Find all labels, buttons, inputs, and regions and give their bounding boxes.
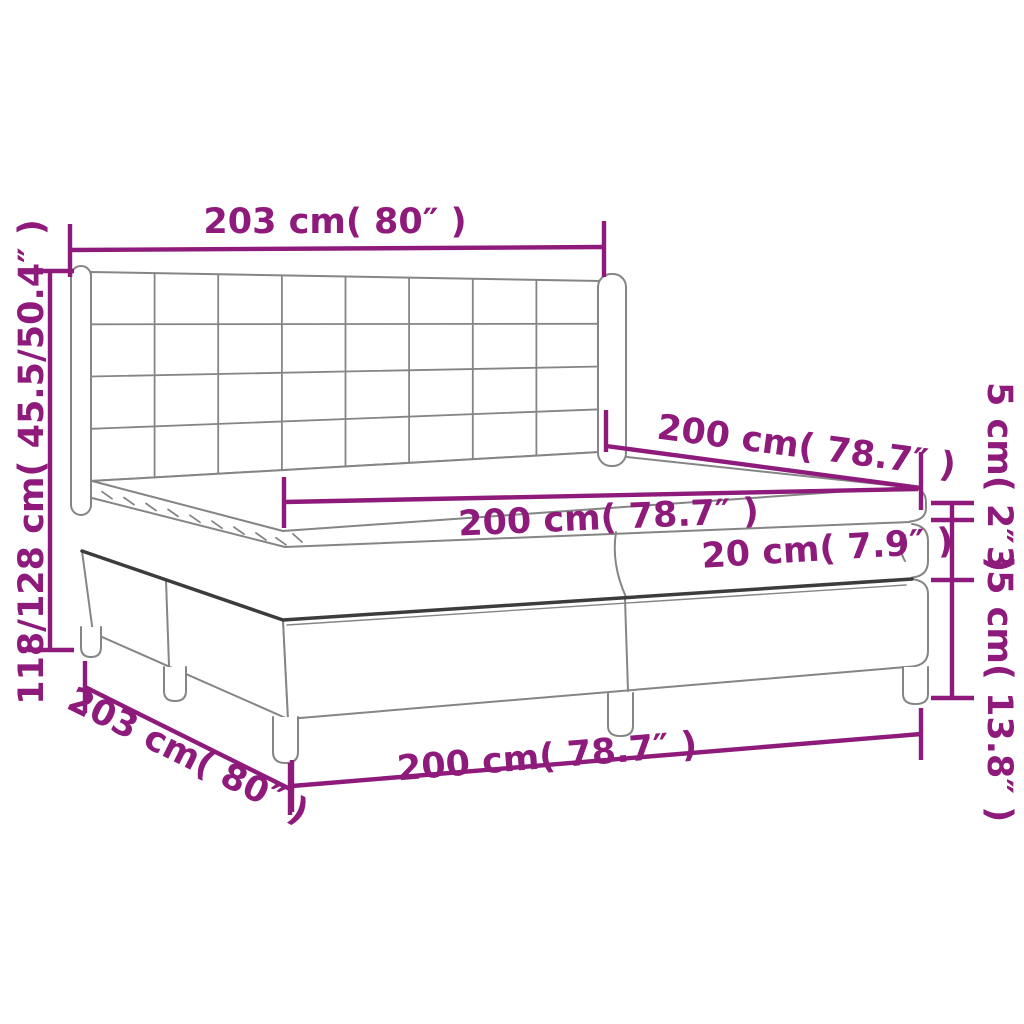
bed-dimension-svg: 203 cm( 80″ ) 118/128 cm( 45.5/50.4″ ) 2…: [0, 0, 1024, 1024]
headboard-width-label: 203 cm( 80″ ): [203, 202, 466, 242]
bed-leg: [164, 667, 186, 701]
base-width-label: 200 cm( 78.7″ ): [396, 725, 699, 790]
base-height-label: 35 cm( 13.8″ ): [979, 546, 1019, 822]
bed-leg: [903, 667, 928, 704]
headboard: [91, 272, 600, 481]
mattress-center-seam: [615, 532, 626, 597]
dimension-diagram: 203 cm( 80″ ) 118/128 cm( 45.5/50.4″ ) 2…: [0, 0, 1024, 1024]
headboard-left-wing: [71, 266, 91, 515]
total-height-label: 118/128 cm( 45.5/50.4″ ): [12, 219, 52, 705]
bed-leg: [81, 627, 101, 657]
topper-height-label: 5 cm( 2″ ): [979, 382, 1019, 572]
headboard-right-wing: [598, 274, 626, 466]
bed-leg: [273, 717, 298, 763]
